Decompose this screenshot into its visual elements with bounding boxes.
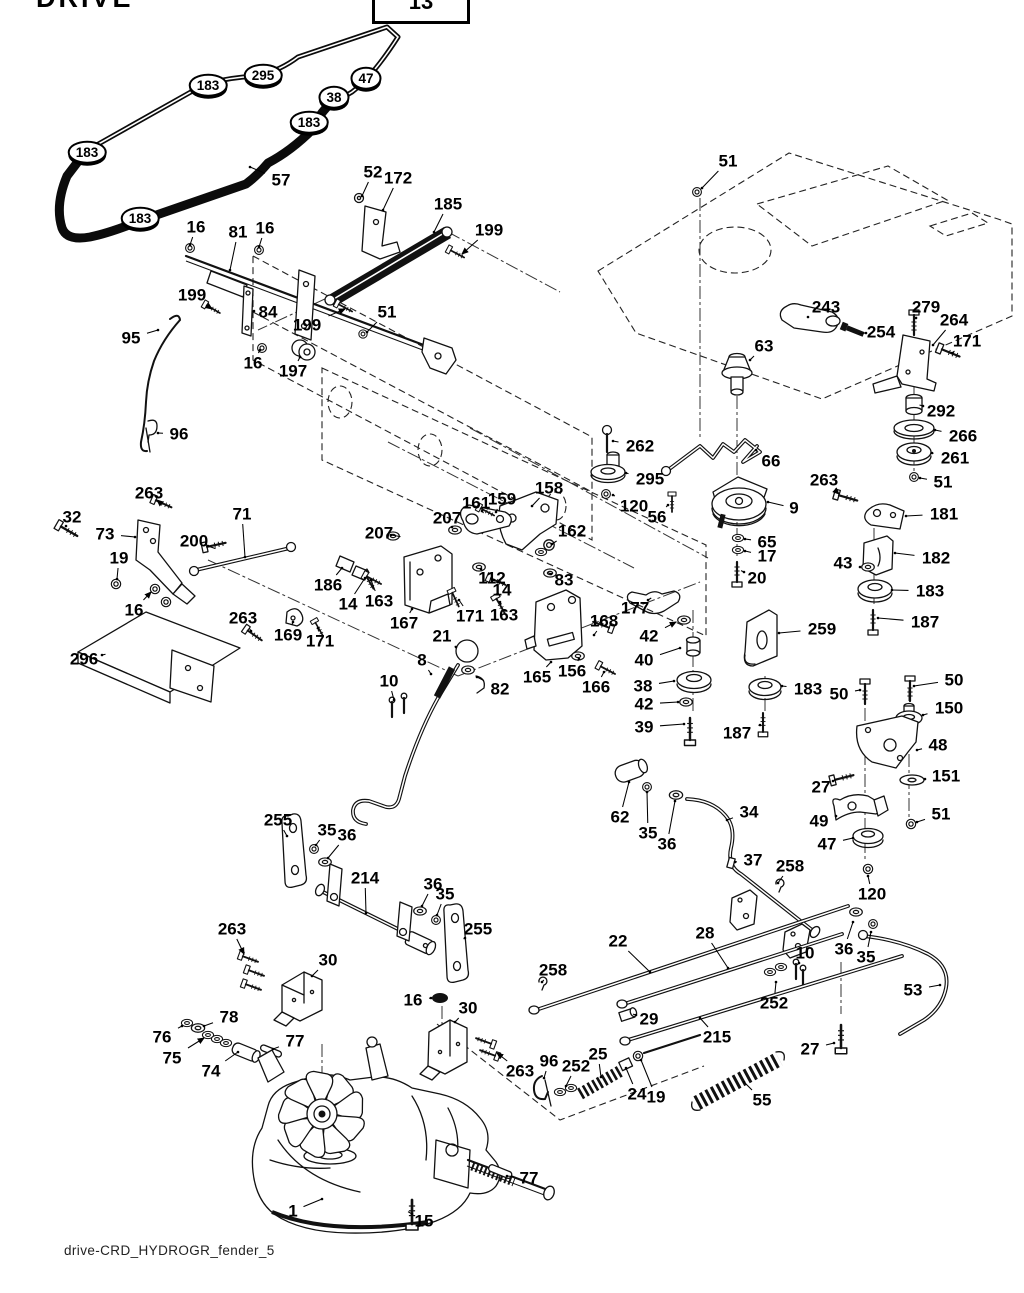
leader-end-dot <box>464 937 467 940</box>
leader-end-dot <box>781 685 784 688</box>
leader-end-dot <box>865 332 868 335</box>
leader-end-dot <box>600 1076 603 1079</box>
leader-line <box>367 322 377 332</box>
leader-line <box>895 553 915 555</box>
leader-line <box>355 578 365 594</box>
leader-end-dot <box>455 646 458 649</box>
leader-end-dot <box>244 556 247 559</box>
leader-line <box>660 724 684 726</box>
leader-end-dot <box>932 344 935 347</box>
leader-end-dot <box>628 781 631 784</box>
leader-end-dot <box>934 429 937 432</box>
leader-end-dot <box>157 329 160 332</box>
leader-end-dot <box>743 571 746 574</box>
leader-end-dot <box>859 566 862 569</box>
leader-line <box>702 171 718 188</box>
leader-end-dot <box>299 356 302 359</box>
leader-end-dot <box>767 501 770 504</box>
leader-end-dot <box>734 861 737 864</box>
leader-end-dot <box>506 1175 509 1178</box>
leader-end-dot <box>916 749 919 752</box>
leader-line <box>225 1052 238 1061</box>
leader-line <box>599 1064 601 1077</box>
leader-end-dot <box>922 405 925 408</box>
leader-end-dot <box>550 661 553 664</box>
leader-line <box>775 982 776 993</box>
leader-end-dot <box>499 601 502 604</box>
leader-end-dot <box>430 997 433 1000</box>
leader-end-dot <box>421 905 424 908</box>
leader-end-dot <box>433 231 436 234</box>
leader-line <box>434 214 443 232</box>
leader-end-dot <box>286 835 289 838</box>
leader-end-dot <box>541 981 544 984</box>
leader-end-dot <box>189 244 192 247</box>
leader-end-dot <box>625 1067 628 1070</box>
leader-end-dot <box>250 630 253 633</box>
leader-line <box>391 535 401 537</box>
leader-end-dot <box>493 579 496 582</box>
leader-line <box>304 1199 323 1207</box>
leader-end-dot <box>870 931 873 934</box>
leader-end-dot <box>916 821 919 824</box>
leader-end-dot <box>905 515 908 518</box>
leader-line <box>117 568 118 579</box>
leader-line <box>660 702 678 703</box>
leader-line <box>230 242 236 270</box>
leader-line <box>712 943 728 968</box>
leader-line <box>641 1060 652 1087</box>
leader-line <box>659 681 674 683</box>
leader-end-dot <box>743 1081 746 1084</box>
leader-line <box>665 622 676 628</box>
leader-end-dot <box>341 567 344 570</box>
leader-end-dot <box>253 310 256 313</box>
leader-end-dot <box>116 578 119 581</box>
leader-end-dot <box>931 452 934 455</box>
leader-end-dot <box>134 536 137 539</box>
leader-end-dot <box>382 209 385 212</box>
leader-end-dot <box>919 477 922 480</box>
leader-line <box>628 951 650 972</box>
leader-line <box>243 524 245 557</box>
leader-line <box>878 618 904 620</box>
leader-end-dot <box>411 1213 414 1216</box>
leader-line <box>906 515 923 516</box>
leader-line <box>392 691 394 700</box>
leader-line <box>157 500 160 503</box>
leader-end-dot <box>859 689 862 692</box>
leader-end-dot <box>430 673 433 676</box>
leader-line <box>462 240 478 254</box>
leader-line <box>914 682 938 686</box>
leader-end-dot <box>361 195 364 198</box>
leader-end-dot <box>646 791 649 794</box>
leader-end-dot <box>867 875 870 878</box>
leader-end-dot <box>229 269 232 272</box>
leader-end-dot <box>578 658 581 661</box>
leader-end-dot <box>894 552 897 555</box>
leader-line <box>647 792 648 823</box>
leader-line <box>532 498 540 506</box>
leader-end-dot <box>203 1025 206 1028</box>
leader-line <box>422 894 428 906</box>
leader-end-dot <box>852 837 855 840</box>
leader-end-dot <box>674 800 677 803</box>
leader-line <box>497 1053 507 1061</box>
leader-end-dot <box>365 912 368 915</box>
leader-end-dot <box>65 525 68 528</box>
leader-end-dot <box>852 921 855 924</box>
leader-end-dot <box>366 331 369 334</box>
leader-end-dot <box>390 534 393 537</box>
leader-line <box>336 568 342 575</box>
leader-end-dot <box>640 1059 643 1062</box>
leader-end-dot <box>317 627 320 630</box>
leader-end-dot <box>647 599 650 602</box>
leader-end-dot <box>481 510 484 513</box>
leader-end-dot <box>550 573 553 576</box>
leader-line <box>626 1068 633 1084</box>
leader-line <box>204 1023 213 1026</box>
leader-end-dot <box>939 984 942 987</box>
leader-end-dot <box>551 543 554 546</box>
leader-end-dot <box>451 526 454 529</box>
leader-end-dot <box>237 1051 240 1054</box>
leader-end-dot <box>101 654 104 657</box>
leader-line <box>669 801 675 834</box>
leader-end-dot <box>778 632 781 635</box>
leader-end-dot <box>259 349 262 352</box>
leader-end-dot <box>699 1017 702 1020</box>
page-ref: 13 <box>409 0 433 14</box>
leader-end-dot <box>755 449 758 452</box>
leader-line <box>744 1082 752 1090</box>
leader-end-dot <box>833 1042 836 1045</box>
leader-line <box>868 932 871 947</box>
parts-diagram-page: DRIVE 13 <box>0 0 1024 1293</box>
leader-end-dot <box>612 494 615 497</box>
leader-end-dot <box>393 699 396 702</box>
leader-end-dot <box>625 472 628 475</box>
leader-end-dot <box>877 617 880 620</box>
leader-end-dot <box>495 511 498 514</box>
leader-line <box>383 188 393 210</box>
leader-line <box>566 1076 571 1086</box>
leader-end-dot <box>726 819 729 822</box>
leader-line <box>933 330 946 345</box>
leader-end-dot <box>951 352 954 355</box>
leader-line <box>929 985 940 987</box>
leader-line <box>660 648 680 655</box>
leader-line <box>437 904 441 915</box>
leader-end-dot <box>565 1085 568 1088</box>
leader-end-dot <box>683 723 686 726</box>
leader-end-dot <box>292 621 295 624</box>
diagram-caption: drive-CRD_HYDROGR_fender_5 <box>64 1243 275 1258</box>
leader-end-dot <box>832 780 835 783</box>
leader-line <box>779 631 801 633</box>
leader-line <box>371 580 375 591</box>
leader-end-dot <box>593 634 596 637</box>
leader-line <box>365 888 366 913</box>
leader-line <box>259 238 262 247</box>
leader-end-dot <box>635 1014 638 1017</box>
leader-end-dot <box>454 1021 457 1024</box>
leader-end-dot <box>759 724 762 727</box>
leader-line <box>188 1038 204 1048</box>
leader-line <box>147 330 158 333</box>
leader-end-dot <box>612 440 615 443</box>
page-ref-box: 13 <box>372 0 470 24</box>
leader-end-dot <box>181 1025 184 1028</box>
leader-end-dot <box>673 680 676 683</box>
leader-line <box>847 922 853 939</box>
leader-end-dot <box>531 505 534 508</box>
leader-line <box>835 490 839 494</box>
leader-end-dot <box>603 671 606 674</box>
leader-end-dot <box>667 504 670 507</box>
leader-line <box>362 182 368 196</box>
leader-end-dot <box>315 844 318 847</box>
leader-end-dot <box>744 538 747 541</box>
leader-end-dot <box>777 882 780 885</box>
leader-line <box>143 592 151 600</box>
leader-end-dot <box>480 568 483 571</box>
leader-line <box>121 536 135 537</box>
leader-end-dot <box>364 577 367 580</box>
leader-line <box>700 1018 708 1027</box>
leader-end-dot <box>924 778 927 781</box>
leader-end-dot <box>327 857 330 860</box>
leader-end-dot <box>749 359 752 362</box>
leader-end-dot <box>458 599 461 602</box>
leader-end-dot <box>679 647 682 650</box>
leader-line <box>843 838 853 840</box>
leader-end-dot <box>835 815 838 818</box>
leader-end-dot <box>727 967 730 970</box>
leader-line <box>237 939 244 954</box>
leader-end-dot <box>543 1077 546 1080</box>
leader-end-dot <box>913 685 916 688</box>
leader-lines <box>0 0 1024 1293</box>
leader-line <box>768 502 784 506</box>
leader-line <box>206 305 212 309</box>
leader-end-dot <box>272 1048 275 1051</box>
leader-end-dot <box>157 432 160 435</box>
leader-end-dot <box>922 714 925 717</box>
leader-end-dot <box>701 187 704 190</box>
leader-line <box>328 845 339 858</box>
leader-end-dot <box>207 545 210 548</box>
leader-end-dot <box>798 962 801 965</box>
leader-end-dot <box>370 579 373 582</box>
leader-end-dot <box>436 914 439 917</box>
leader-line <box>250 167 265 173</box>
leader-line <box>329 309 346 316</box>
leader-end-dot <box>891 589 894 592</box>
leader-end-dot <box>476 676 479 679</box>
leader-end-dot <box>677 701 680 704</box>
leader-end-dot <box>807 316 810 319</box>
leader-end-dot <box>411 608 414 611</box>
leader-line <box>623 782 629 807</box>
leader-end-dot <box>249 166 252 169</box>
leader-end-dot <box>258 246 261 249</box>
leader-end-dot <box>775 981 778 984</box>
leader-end-dot <box>649 971 652 974</box>
page-title: DRIVE <box>36 0 134 14</box>
leader-end-dot <box>321 1198 324 1201</box>
leader-end-dot <box>311 975 314 978</box>
leader-end-dot <box>915 317 918 320</box>
leader-end-dot <box>744 550 747 553</box>
